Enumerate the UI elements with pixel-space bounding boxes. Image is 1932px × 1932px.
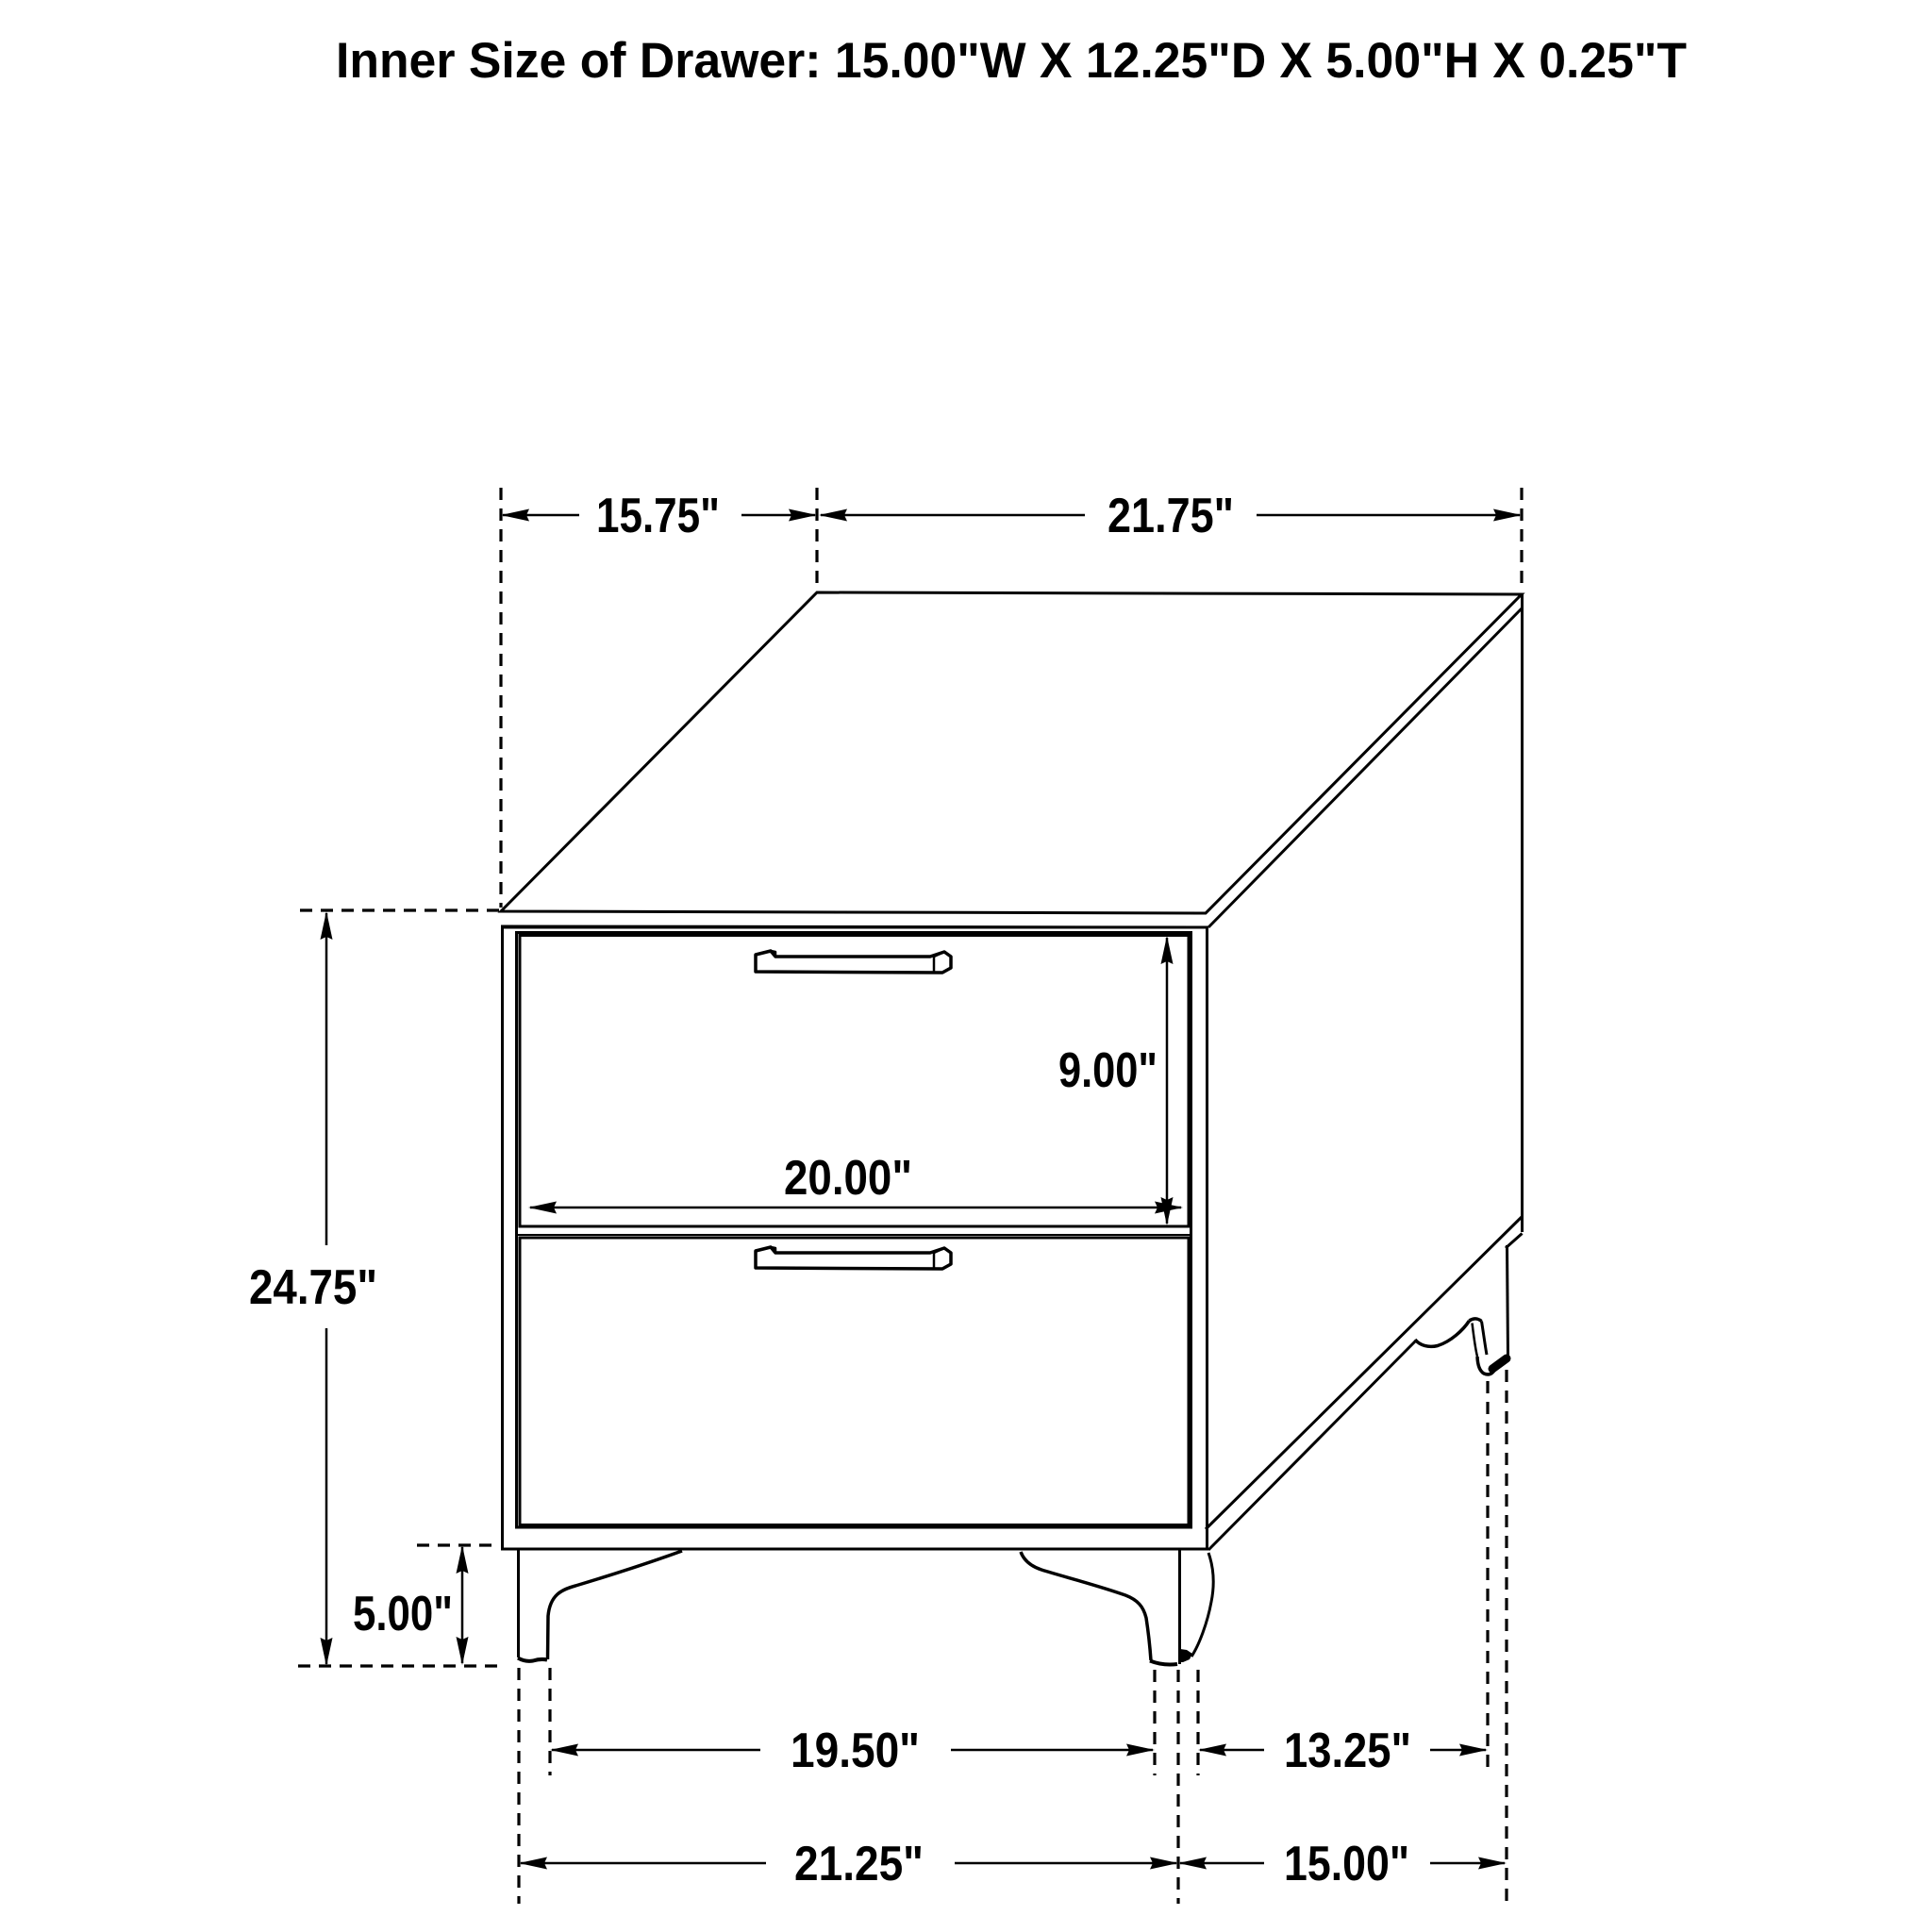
svg-text:21.75": 21.75" bbox=[1108, 489, 1234, 543]
svg-text:Inner Size of Drawer: 15.00"W: Inner Size of Drawer: 15.00"W X 12.25"D … bbox=[336, 33, 1687, 89]
svg-text:5.00": 5.00" bbox=[353, 1587, 453, 1641]
svg-text:24.75": 24.75" bbox=[249, 1260, 377, 1315]
svg-text:15.75": 15.75" bbox=[596, 489, 720, 543]
svg-text:21.25": 21.25" bbox=[794, 1837, 924, 1891]
svg-text:19.50": 19.50" bbox=[791, 1724, 920, 1778]
svg-text:13.25": 13.25" bbox=[1284, 1724, 1411, 1778]
svg-text:9.00": 9.00" bbox=[1058, 1043, 1158, 1098]
svg-text:20.00": 20.00" bbox=[784, 1151, 912, 1206]
svg-text:15.00": 15.00" bbox=[1284, 1837, 1409, 1891]
